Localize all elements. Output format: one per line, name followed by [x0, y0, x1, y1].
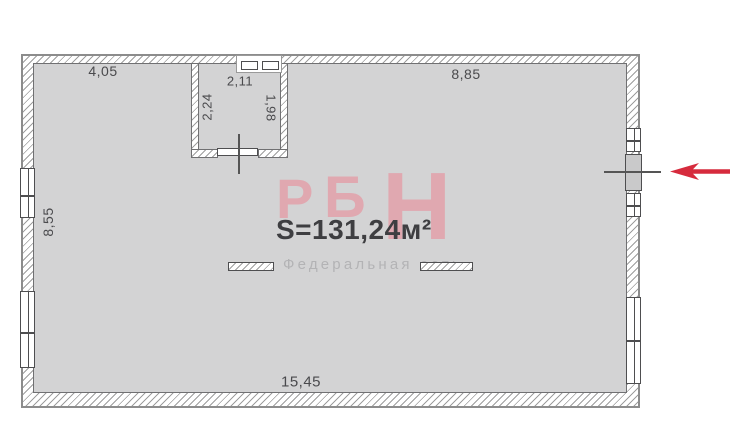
wc-door-axis-line — [238, 134, 240, 174]
dim-wc-left: 2,24 — [200, 93, 215, 120]
dim-top-left: 4,05 — [88, 63, 117, 79]
dim-bottom-width: 15,45 — [281, 374, 321, 391]
entrance-sidelight-top — [626, 128, 641, 152]
vent-duct-2 — [262, 61, 279, 70]
vent-duct-1 — [241, 61, 258, 70]
window-divider — [21, 332, 34, 334]
window-right — [626, 297, 641, 384]
tagline-hatch-bar-right — [420, 262, 473, 271]
window-left-lower — [20, 291, 35, 368]
window-divider — [627, 340, 640, 342]
entrance-sidelight-bottom — [626, 193, 641, 217]
window-left-upper — [20, 168, 35, 218]
window-divider — [627, 140, 640, 142]
wc-wall-left — [191, 63, 199, 158]
dim-top-right: 8,85 — [451, 66, 480, 82]
entrance-arrow-icon — [668, 162, 732, 181]
floor-plan: Р Б Н S=131,24м² Федеральная сеть 4,05 8… — [0, 0, 750, 440]
entrance-axis-line — [604, 171, 661, 173]
dim-left-height: 8,55 — [40, 207, 56, 236]
window-divider — [627, 205, 640, 207]
wc-wall-bottom-left — [191, 149, 218, 158]
tagline-hatch-bar-left — [228, 262, 274, 271]
dim-wc-right: 1,98 — [264, 94, 279, 121]
area-label: S=131,24м² — [276, 214, 432, 246]
window-divider — [21, 195, 34, 197]
wc-wall-right — [280, 63, 288, 158]
entrance-door — [625, 154, 642, 191]
dim-wc-width: 2,11 — [227, 74, 253, 89]
wc-wall-bottom-right — [258, 149, 288, 158]
